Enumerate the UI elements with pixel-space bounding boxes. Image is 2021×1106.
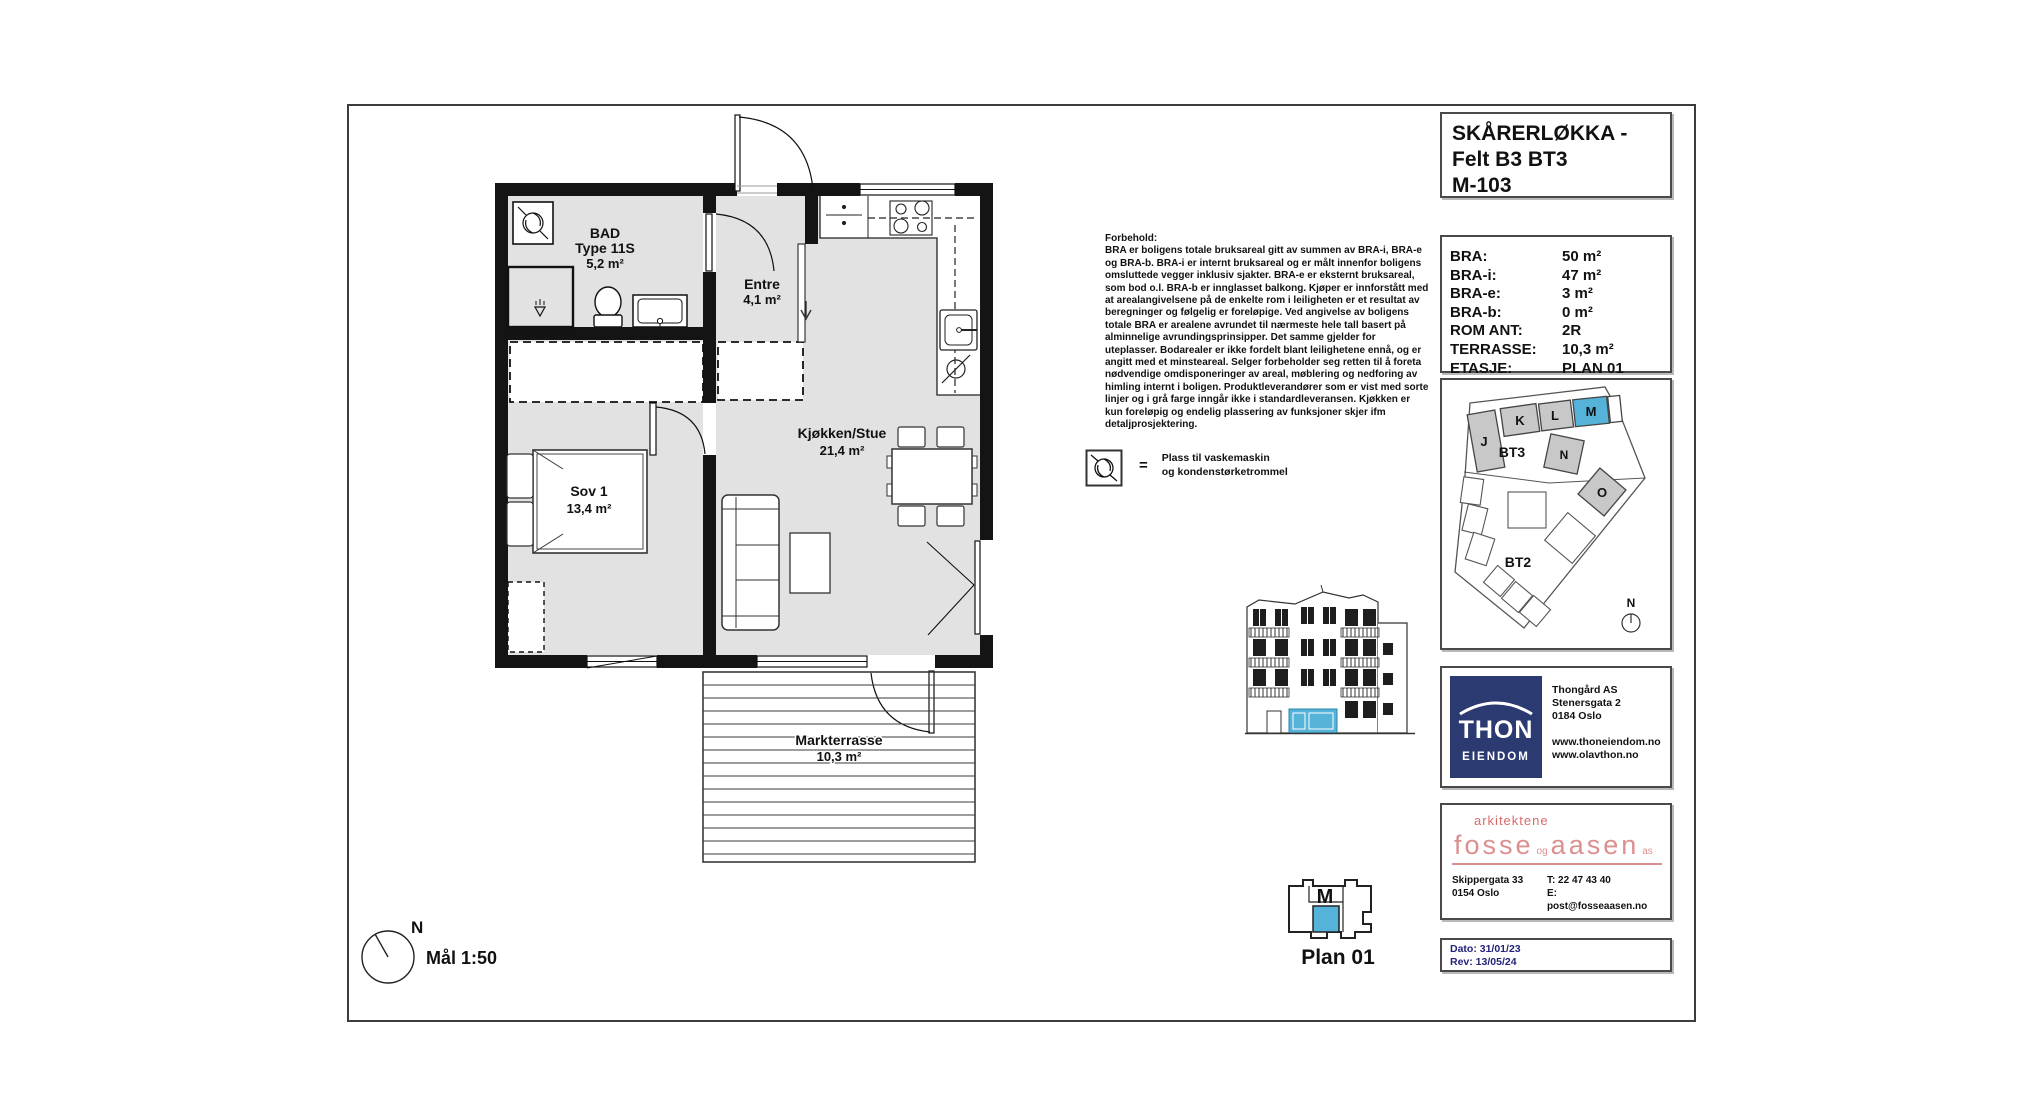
legend-text-line1: Plass til vaskemaskin bbox=[1162, 452, 1288, 466]
table-row: BRA-e:3 m² bbox=[1450, 285, 1662, 304]
info-value: 2R bbox=[1562, 322, 1581, 339]
site-label-bt3: BT3 bbox=[1499, 444, 1526, 460]
info-label: BRA-b: bbox=[1450, 304, 1562, 321]
table-row: BRA-i:47 m² bbox=[1450, 267, 1662, 286]
architect-phone: T: 22 47 43 40 bbox=[1547, 874, 1660, 887]
title-line-1: SKÅRERLØKKA - bbox=[1452, 121, 1660, 147]
thon-company: Thongård AS bbox=[1552, 684, 1661, 697]
info-value: 50 m² bbox=[1562, 248, 1601, 265]
architect-tagline: arkitektene bbox=[1474, 813, 1660, 828]
vanity-sink bbox=[633, 295, 687, 327]
room-label-sov: Sov 1 bbox=[570, 483, 608, 499]
thon-logo-text: THON bbox=[1459, 716, 1534, 744]
area-info-table: BRA:50 m² BRA-i:47 m² BRA-e:3 m² BRA-b:0… bbox=[1440, 235, 1672, 373]
site-north-label: N bbox=[1627, 596, 1636, 610]
info-value: 0 m² bbox=[1562, 304, 1593, 321]
info-label: BRA: bbox=[1450, 248, 1562, 265]
dates-block: Dato: 31/01/23 Rev: 13/05/24 bbox=[1440, 938, 1672, 972]
room-label-bad: BAD bbox=[590, 225, 620, 241]
legend-equals: = bbox=[1139, 457, 1148, 474]
legend-text-line2: og kondenstørketrommel bbox=[1162, 466, 1288, 480]
toilet bbox=[594, 287, 622, 327]
floor-key-unit-label: M bbox=[1317, 886, 1334, 908]
site-blocks-bt2 bbox=[1460, 477, 1595, 627]
washing-machine-icon bbox=[1085, 449, 1123, 487]
developer-block: THON EIENDOM Thongård AS Stenersgata 2 0… bbox=[1440, 666, 1672, 788]
logo-as: as bbox=[1642, 846, 1653, 857]
north-label: N bbox=[411, 918, 423, 937]
building-elevation bbox=[1245, 583, 1440, 745]
architect-block: arkitektene fosseogaasenas Skippergata 3… bbox=[1440, 803, 1672, 920]
room-label-bad-area: 5,2 m² bbox=[586, 256, 624, 271]
scale-label: Mål 1:50 bbox=[426, 948, 497, 968]
elevation-highlighted-unit bbox=[1289, 709, 1337, 733]
eiendom-logo-text: EIENDOM bbox=[1462, 751, 1530, 763]
thon-street: Stenersgata 2 bbox=[1552, 697, 1661, 710]
table-row: ETASJE:PLAN 01 bbox=[1450, 360, 1662, 379]
title-line-3: M-103 bbox=[1452, 173, 1660, 199]
site-plan: J K L M N O BT3 BT2 N bbox=[1440, 378, 1672, 650]
thon-city: 0184 Oslo bbox=[1552, 710, 1661, 723]
room-label-terrasse-area: 10,3 m² bbox=[817, 749, 862, 764]
site-label-bt2: BT2 bbox=[1505, 554, 1532, 570]
plan-caption: Plan 01 bbox=[1278, 946, 1398, 970]
site-label-n: N bbox=[1560, 448, 1569, 462]
disclaimer-body: BRA er boligens totale bruksareal gitt a… bbox=[1105, 245, 1430, 431]
title-line-2: Felt B3 BT3 bbox=[1452, 147, 1660, 173]
washing-machine-symbol bbox=[513, 202, 553, 244]
title-block: SKÅRERLØKKA - Felt B3 BT3 M-103 bbox=[1440, 112, 1672, 198]
thon-web1: www.thoneiendom.no bbox=[1552, 736, 1661, 749]
architect-logo: fosseogaasenas bbox=[1452, 830, 1662, 865]
table-row: BRA:50 m² bbox=[1450, 248, 1662, 267]
info-label: ETASJE: bbox=[1450, 360, 1562, 377]
room-label-bad-type: Type 11S bbox=[575, 240, 635, 256]
architect-email: E: post@fosseaasen.no bbox=[1547, 887, 1660, 913]
date-revised: Rev: 13/05/24 bbox=[1450, 956, 1662, 969]
site-north-arrow-icon bbox=[1622, 614, 1640, 632]
info-label: BRA-i: bbox=[1450, 267, 1562, 284]
site-label-o: O bbox=[1597, 485, 1607, 500]
table-row: BRA-b:0 m² bbox=[1450, 304, 1662, 323]
logo-fosse: fosse bbox=[1454, 830, 1534, 860]
table-row: ROM ANT:2R bbox=[1450, 322, 1662, 341]
info-label: ROM ANT: bbox=[1450, 322, 1562, 339]
architect-city: 0154 Oslo bbox=[1452, 887, 1547, 900]
north-arrow-and-scale: N Mål 1:50 bbox=[358, 915, 528, 995]
room-label-sov-area: 13,4 m² bbox=[567, 501, 612, 516]
floor-plan-drawing: BAD Type 11S 5,2 m² Entre 4,1 m² Kjøkken… bbox=[490, 105, 1030, 895]
disclaimer-block: Forbehold: BRA er boligens totale bruksa… bbox=[1105, 233, 1430, 432]
site-plan-drawing: J K L M N O BT3 BT2 N bbox=[1442, 380, 1670, 648]
architect-street: Skippergata 33 bbox=[1452, 874, 1547, 887]
thon-eiendom-logo: THON EIENDOM bbox=[1450, 676, 1542, 778]
floor-key-icon: M bbox=[1283, 872, 1378, 944]
logo-aasen: aasen bbox=[1551, 830, 1640, 860]
info-value: PLAN 01 bbox=[1562, 360, 1624, 377]
info-value: 3 m² bbox=[1562, 285, 1593, 302]
info-value: 47 m² bbox=[1562, 267, 1601, 284]
info-label: BRA-e: bbox=[1450, 285, 1562, 302]
table-row: TERRASSE:10,3 m² bbox=[1450, 341, 1662, 360]
site-label-j: J bbox=[1480, 434, 1487, 449]
legend: = Plass til vaskemaskin og kondenstørket… bbox=[1085, 449, 1288, 487]
room-label-entre-area: 4,1 m² bbox=[743, 292, 781, 307]
room-label-terrasse: Markterrasse bbox=[795, 732, 882, 748]
date-created: Dato: 31/01/23 bbox=[1450, 943, 1662, 956]
site-label-m: M bbox=[1586, 404, 1597, 419]
coffee-table bbox=[790, 533, 830, 593]
site-label-k: K bbox=[1515, 413, 1525, 428]
entrance-door bbox=[735, 115, 813, 193]
room-label-stue: Kjøkken/Stue bbox=[798, 425, 887, 441]
room-label-entre: Entre bbox=[744, 276, 780, 292]
thon-web2: www.olavthon.no bbox=[1552, 749, 1661, 762]
sofa bbox=[722, 495, 779, 630]
disclaimer-heading: Forbehold: bbox=[1105, 233, 1430, 245]
info-value: 10,3 m² bbox=[1562, 341, 1614, 358]
site-label-l: L bbox=[1551, 408, 1559, 423]
room-label-stue-area: 21,4 m² bbox=[820, 443, 865, 458]
kitchen-sink bbox=[940, 310, 977, 350]
logo-og: og bbox=[1537, 846, 1548, 857]
elevation-entry-door bbox=[1267, 711, 1281, 733]
info-label: TERRASSE: bbox=[1450, 341, 1562, 358]
